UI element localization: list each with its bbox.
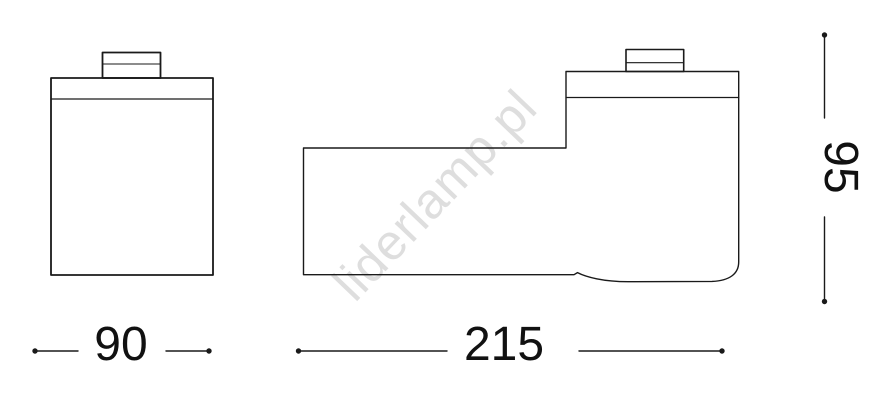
dimension-length-right-dot <box>719 348 724 353</box>
dimension-width-label: 90 <box>94 321 147 369</box>
dimension-height-bottom-dot <box>822 299 827 304</box>
front-view-mount-knob <box>103 53 161 79</box>
side-view <box>304 50 739 282</box>
technical-drawing: liderlamp.pl <box>0 0 883 401</box>
front-view <box>51 53 213 276</box>
side-view-body-outline <box>304 72 739 282</box>
dimension-length-label: 215 <box>464 321 544 369</box>
dimension-height-label: 95 <box>816 140 864 193</box>
side-view-mount-knob <box>626 50 684 72</box>
front-view-body-outline <box>51 78 213 275</box>
dimension-width-right-dot <box>206 348 211 353</box>
